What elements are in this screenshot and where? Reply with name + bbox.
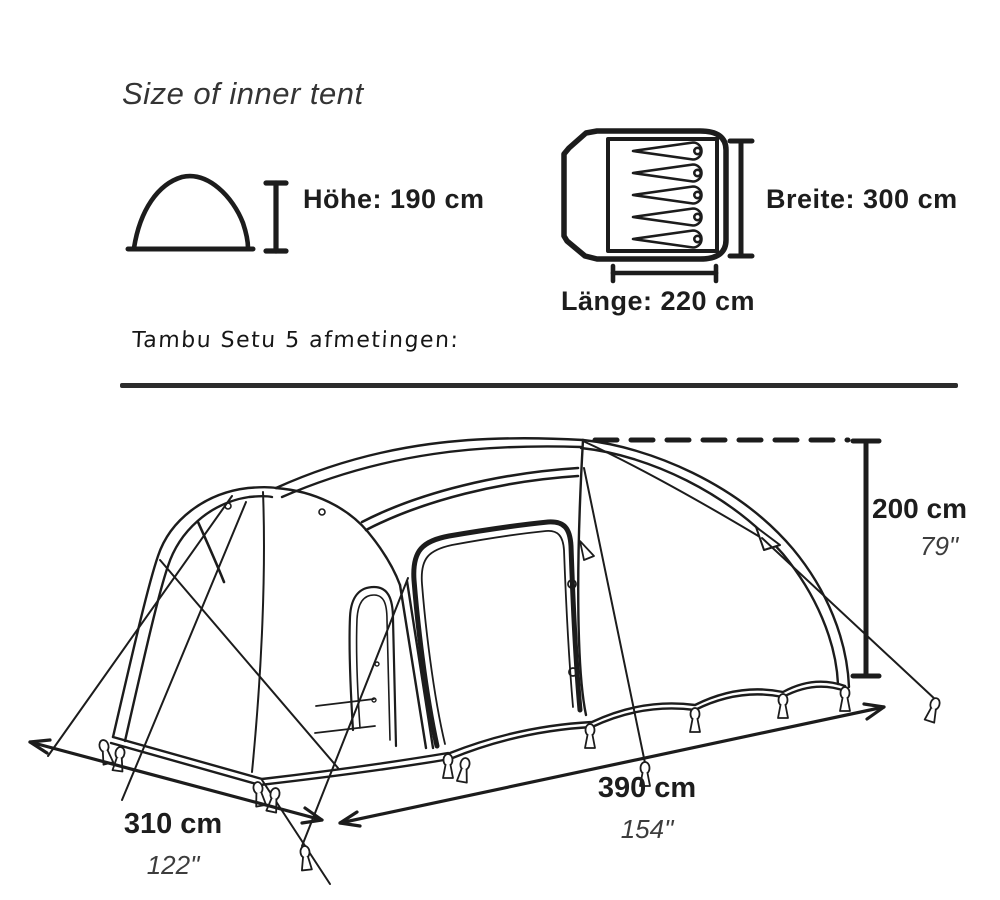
sleeping-pad bbox=[633, 143, 702, 160]
sleeping-pad bbox=[633, 209, 702, 226]
inner-tent-height-label: Höhe: 190 cm bbox=[303, 184, 485, 215]
mid-section-door bbox=[315, 468, 580, 746]
sleeping-pad bbox=[633, 187, 702, 204]
length-inch-value: 154" bbox=[552, 814, 742, 845]
depth-cm-value: 310 cm bbox=[91, 808, 255, 841]
height-cm-value: 200 cm bbox=[872, 493, 967, 525]
rear-dome-section bbox=[568, 440, 849, 715]
depth-inch-value: 122" bbox=[91, 850, 255, 881]
tent-size-diagram-page: Size of inner tent Höhe: 190 cm Breite: … bbox=[0, 0, 1000, 900]
diagram-artwork bbox=[0, 0, 1000, 900]
inner-tent-length-label: Länge: 220 cm bbox=[556, 286, 760, 317]
page-title: Size of inner tent bbox=[122, 76, 364, 112]
length-dimension-label: 390 cm 154" bbox=[552, 772, 742, 845]
tent-floorplan-icon bbox=[564, 131, 726, 259]
height-measure-bar-icon bbox=[266, 183, 286, 251]
section-divider bbox=[120, 383, 958, 388]
length-cm-value: 390 cm bbox=[552, 772, 742, 805]
sleeping-pad bbox=[633, 231, 702, 248]
depth-dimension-label: 310 cm 122" bbox=[91, 808, 255, 881]
inner-tent-width-label: Breite: 300 cm bbox=[766, 184, 958, 215]
handwritten-note: Tambu Setu 5 afmetingen: bbox=[131, 328, 460, 353]
length-measure-bar-icon bbox=[613, 266, 716, 281]
height-dimension-bar bbox=[853, 441, 879, 676]
width-measure-bar-icon bbox=[730, 141, 752, 256]
tent-side-profile-icon bbox=[128, 176, 253, 249]
sleeping-pads bbox=[633, 143, 702, 248]
sleeping-pad bbox=[633, 165, 702, 182]
height-inch-value: 79" bbox=[920, 531, 958, 562]
